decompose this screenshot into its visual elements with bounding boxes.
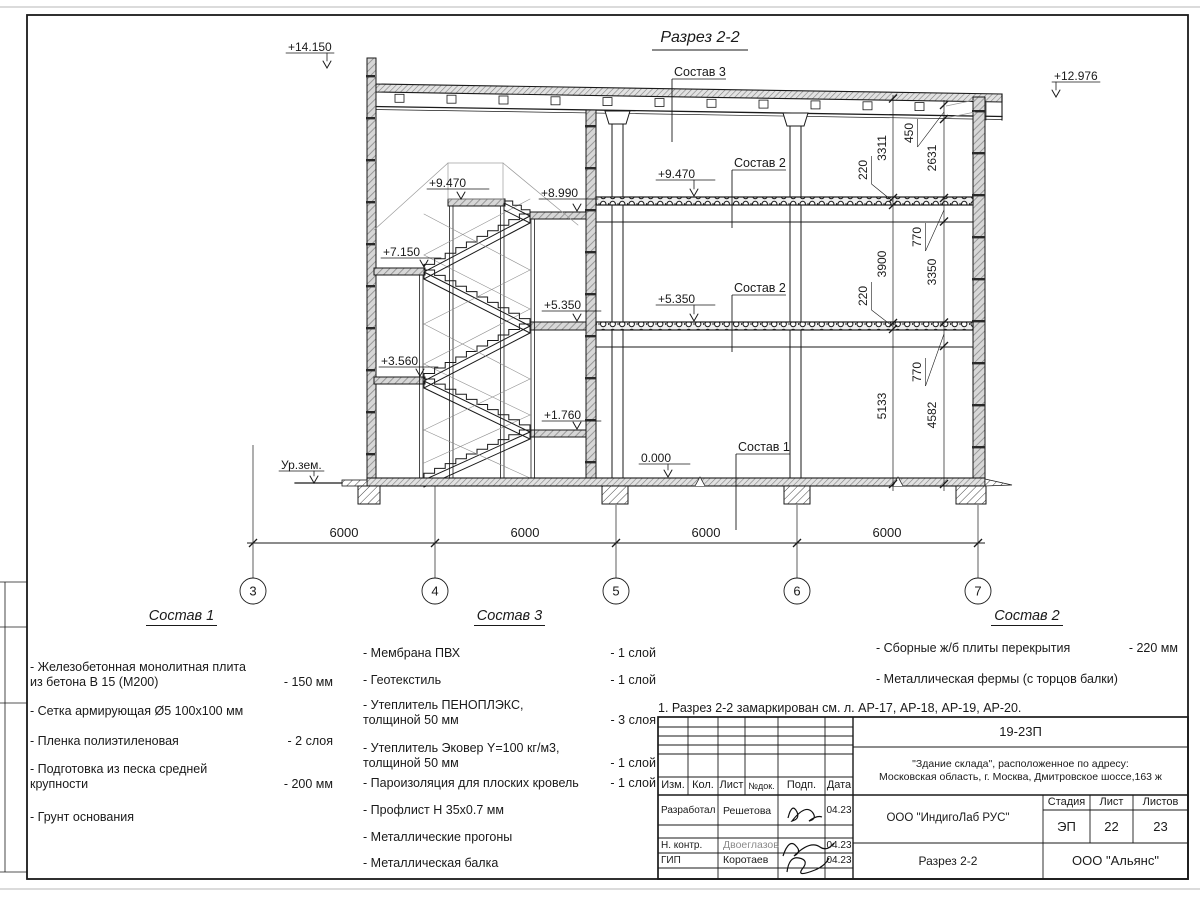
svg-text:+9.470: +9.470 [429, 176, 466, 190]
wall-joint [366, 243, 375, 245]
stair-line [424, 214, 530, 270]
ground-slab [295, 477, 1012, 486]
purlin [915, 103, 924, 111]
floor-slab-9470 [596, 197, 973, 222]
wall-joint [366, 285, 375, 287]
stair-line [424, 430, 530, 478]
purlin [759, 100, 768, 108]
dim-3900: 3900 [875, 250, 889, 277]
wall-joint [972, 152, 985, 154]
svg-text:+12.976: +12.976 [1054, 69, 1098, 83]
elevation-9470-stair: +9.470 [427, 176, 489, 199]
svg-text:+5.350: +5.350 [658, 292, 695, 306]
stair-posts [420, 206, 535, 478]
dim-770-upper: 770 [910, 227, 924, 247]
frame-left-strip [0, 582, 27, 872]
grid-bubble-6: 6 [793, 584, 800, 599]
wall-joint [366, 117, 375, 119]
purlin [603, 98, 612, 106]
wall-joint [585, 335, 596, 337]
drawing-sheet: Разрез 2-2 [0, 0, 1200, 900]
ground-level-mark: Ур.зем. [279, 458, 324, 483]
svg-text:+5.350: +5.350 [544, 298, 581, 312]
height-chain-labels: 3311 3900 5133 220 220 2631 3350 4582 45… [856, 112, 944, 428]
wall-joint [585, 167, 596, 169]
roof [374, 84, 1002, 120]
dim-450: 450 [902, 123, 916, 143]
svg-text:+1.760: +1.760 [544, 408, 581, 422]
grid-bubble-4: 4 [431, 584, 438, 599]
wall-joint [585, 293, 596, 295]
title-block-grid [658, 717, 1188, 879]
wall-joint [972, 362, 985, 364]
wall-joint [366, 369, 375, 371]
wall-joint [366, 453, 375, 455]
purlin [655, 99, 664, 107]
svg-text:Состав 3: Состав 3 [674, 65, 726, 79]
stair-landings [374, 199, 586, 437]
wall-joint [972, 236, 985, 238]
grid-bubble-3: 3 [249, 584, 256, 599]
dim-3311: 3311 [875, 135, 889, 161]
dim-220-lower: 220 [856, 286, 870, 306]
purlin [447, 95, 456, 103]
svg-text:+8.990: +8.990 [541, 186, 578, 200]
purlin [707, 99, 716, 107]
svg-text:Состав 2: Состав 2 [734, 156, 786, 170]
wall-joint [972, 404, 985, 406]
wall-joint [585, 461, 596, 463]
column-grid6 [783, 113, 808, 478]
wall-joint [585, 209, 596, 211]
svg-text:0.000: 0.000 [641, 451, 671, 465]
elevation-3560: +3.560 [379, 354, 438, 376]
purlin [499, 96, 508, 104]
wall-joint [972, 320, 985, 322]
wall-joint [366, 411, 375, 413]
stair-flights [424, 199, 530, 487]
wall-joint [366, 75, 375, 77]
elevation-9470-main: +9.470 [656, 167, 715, 196]
svg-text:Состав 1: Состав 1 [738, 440, 790, 454]
section-drawing-canvas: Разрез 2-2 [0, 0, 1200, 900]
wall-joint [366, 159, 375, 161]
elevation-14150: +14.150 [286, 40, 334, 68]
column-grid5 [605, 111, 630, 478]
dim-span-3: 6000 [692, 525, 721, 540]
wall-joint [585, 251, 596, 253]
stair-line [424, 199, 530, 255]
footings [358, 486, 986, 504]
stair-line [424, 216, 530, 279]
svg-text:Ур.зем.: Ур.зем. [281, 458, 322, 472]
stair-line [424, 326, 530, 388]
dim-2631: 2631 [925, 144, 939, 171]
elevation-5350-main: +5.350 [656, 292, 715, 321]
wall-joint [972, 194, 985, 196]
dim-770-lower: 770 [910, 362, 924, 382]
svg-text:+9.470: +9.470 [658, 167, 695, 181]
grid-bubble-5: 5 [612, 584, 619, 599]
elevation-12976: +12.976 [1052, 69, 1100, 97]
stair-line [424, 324, 530, 379]
elevation-0000: 0.000 [639, 451, 690, 477]
callout-sostav3: Состав 3 [672, 65, 726, 142]
dim-3350: 3350 [925, 258, 939, 285]
dim-span-4: 6000 [873, 525, 902, 540]
signature-strokes [783, 808, 834, 873]
stair-line [424, 309, 530, 364]
dim-5133: 5133 [875, 392, 889, 419]
floor-slab-5350 [596, 322, 973, 347]
callout-sostav2-lower: Состав 2 [732, 281, 786, 352]
stair-line [424, 272, 530, 333]
purlin [811, 101, 820, 109]
stair-line [424, 364, 530, 415]
elevation-7150: +7.150 [381, 245, 441, 267]
wall-joint [972, 446, 985, 448]
section-title-text: Разрез 2-2 [660, 29, 739, 46]
dim-span-2: 6000 [511, 525, 540, 540]
svg-text:Состав 2: Состав 2 [734, 281, 786, 295]
stair-line [424, 270, 530, 324]
callout-sostav2-upper: Состав 2 [732, 156, 786, 228]
wall-joint [585, 377, 596, 379]
grid-bubble-7: 7 [974, 584, 981, 599]
wall-joint [366, 201, 375, 203]
svg-text:+14.150: +14.150 [288, 40, 332, 54]
dim-220-upper: 220 [856, 160, 870, 180]
wall-joint [585, 125, 596, 127]
dim-span-1: 6000 [330, 525, 359, 540]
section-title: Разрез 2-2 [652, 29, 748, 50]
wall-joint [972, 278, 985, 280]
wall-joint [366, 327, 375, 329]
purlin [395, 94, 404, 102]
purlin [551, 97, 560, 105]
purlin [863, 102, 872, 110]
svg-text:+7.150: +7.150 [383, 245, 420, 259]
dim-4582: 4582 [925, 401, 939, 428]
sheet-frame [0, 7, 1200, 889]
svg-text:+3.560: +3.560 [381, 354, 418, 368]
